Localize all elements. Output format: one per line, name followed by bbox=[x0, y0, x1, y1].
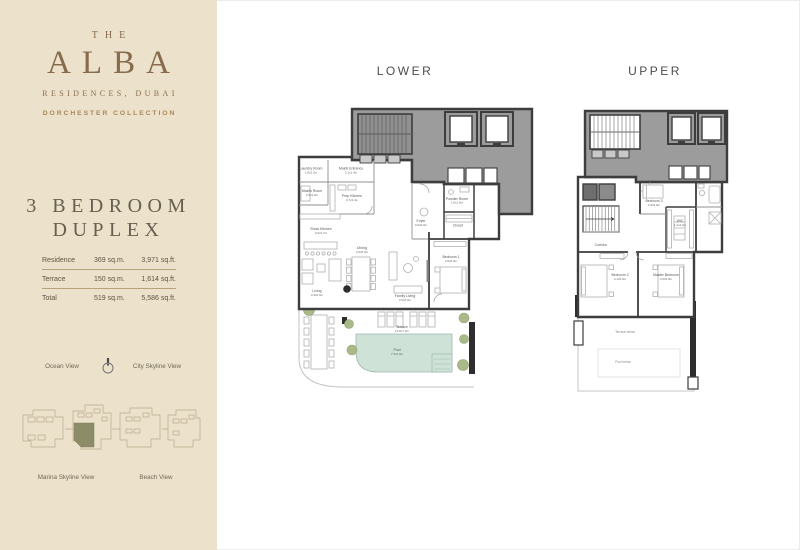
siteplan-highlight-unit bbox=[74, 423, 94, 447]
sidebar: THE ALBA RESIDENCES, DUBAI DORCHESTER CO… bbox=[0, 0, 217, 550]
brand-collection: DORCHESTER COLLECTION bbox=[0, 110, 217, 117]
unit-title-line2: DUPLEX bbox=[0, 218, 217, 242]
void-shaft bbox=[599, 184, 615, 200]
room-dims: 3.6x4.7m bbox=[315, 231, 328, 235]
room-dims: 2.5x2.9m bbox=[306, 193, 319, 197]
void-shaft bbox=[583, 184, 597, 200]
view-label-city-skyline: City Skyline View bbox=[124, 363, 190, 370]
room-dims: 3.0x6.0m bbox=[415, 223, 428, 227]
area-sqft: 3,971 sq.ft. bbox=[134, 257, 176, 264]
room-dims: 3.7x3.4m bbox=[346, 198, 359, 202]
room-dims: 13.8x7.3m bbox=[395, 329, 410, 333]
upper-plan-title: UPPER bbox=[590, 64, 720, 78]
room-dims: 2.9x5.0m bbox=[648, 203, 661, 207]
brand-name: ALBA bbox=[0, 45, 217, 82]
column bbox=[688, 377, 698, 389]
room-dims: 7.5x2.9m bbox=[391, 352, 404, 356]
area-label: Total bbox=[42, 295, 94, 302]
area-sqm: 519 sq.m. bbox=[94, 295, 134, 302]
room-dims: 1.6x1.6m bbox=[451, 201, 464, 205]
area-sqm: 369 sq.m. bbox=[94, 257, 134, 264]
building-core bbox=[585, 111, 727, 182]
unit-title-line1: 3 BEDROOM bbox=[0, 194, 217, 218]
room-label: Closet bbox=[453, 224, 463, 228]
table-row: Residence 369 sq.m. 3,971 sq.ft. bbox=[42, 251, 176, 270]
room-label: Terrace below bbox=[615, 330, 636, 334]
view-label-ocean: Ocean View bbox=[30, 363, 94, 370]
room-dims: 4.5x6.0m bbox=[399, 298, 412, 302]
room-dims: 4.4x6.0m bbox=[311, 293, 324, 297]
table-row: Total 519 sq.m. 5,586 sq.ft. bbox=[42, 289, 176, 307]
lower-terrace: Terrace 13.8x7.3m Pool 7.5x2.9m bbox=[299, 305, 475, 388]
upper-floorplan: Terrace below Pool below bbox=[570, 102, 740, 402]
area-table: Residence 369 sq.m. 3,971 sq.ft. Terrace… bbox=[42, 251, 176, 307]
room-label: Corridor bbox=[595, 243, 608, 247]
area-label: Residence bbox=[42, 257, 94, 264]
room-dims: 4.0x5.0m bbox=[356, 250, 369, 254]
wall-pier bbox=[469, 322, 475, 374]
siteplan-map bbox=[16, 395, 206, 473]
room-label: Pool below bbox=[615, 360, 631, 364]
brand-pre: THE bbox=[0, 30, 217, 41]
room-dims: 4.1x5.0m bbox=[614, 277, 627, 281]
lower-plan-title: LOWER bbox=[340, 64, 470, 78]
structural-column bbox=[343, 285, 351, 293]
column bbox=[574, 321, 583, 345]
room-dims: 1.2x4.2m bbox=[674, 223, 687, 227]
area-sqm: 150 sq.m. bbox=[94, 276, 134, 283]
table-row: Terrace 150 sq.m. 1,614 sq.ft. bbox=[42, 270, 176, 289]
service-rooms bbox=[448, 168, 497, 183]
room-dims: 4.5x5.0m bbox=[660, 277, 673, 281]
room-dims: 4.0x5.0m bbox=[445, 259, 458, 263]
area-sqft: 1,614 sq.ft. bbox=[134, 276, 176, 283]
lower-floorplan: Terrace 13.8x7.3m Pool 7.5x2.9m bbox=[294, 102, 534, 402]
internal-stair bbox=[583, 206, 619, 232]
area-label: Terrace bbox=[42, 276, 94, 283]
outdoor-dining-set bbox=[304, 315, 334, 369]
room-dims: 1.8x2.2m bbox=[305, 170, 318, 174]
brand-subtitle: RESIDENCES, DUBAI bbox=[0, 89, 217, 98]
siteplan-buildings bbox=[23, 405, 200, 449]
view-label-marina-skyline: Marina Skyline View bbox=[24, 474, 108, 481]
service-rooms bbox=[669, 166, 710, 179]
room-dims: 2.1x1.3m bbox=[345, 170, 358, 174]
unit-title: 3 BEDROOM DUPLEX bbox=[0, 194, 217, 242]
area-sqft: 5,586 sq.ft. bbox=[134, 295, 176, 302]
brochure-page: THE ALBA RESIDENCES, DUBAI DORCHESTER CO… bbox=[0, 0, 800, 550]
view-label-beach: Beach View bbox=[126, 474, 186, 481]
brand-logo: THE ALBA RESIDENCES, DUBAI DORCHESTER CO… bbox=[0, 30, 217, 117]
compass-icon bbox=[100, 354, 116, 378]
